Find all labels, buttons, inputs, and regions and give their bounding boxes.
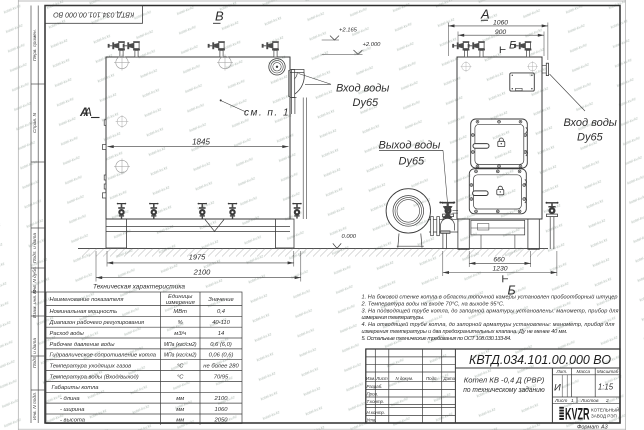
svg-text:Гидравлическое сопротивление к: Гидравлическое сопротивление котла [50, 353, 157, 359]
svg-text:по техническому заданию: по техническому заданию [463, 386, 545, 394]
svg-text:+2.165: +2.165 [339, 28, 358, 34]
svg-text:Вход воды: Вход воды [336, 83, 389, 95]
svg-text:Н.контр.: Н.контр. [367, 410, 386, 415]
svg-text:Б: Б [509, 40, 516, 52]
svg-text:Расход воды: Расход воды [50, 331, 85, 337]
svg-text:1060: 1060 [493, 20, 508, 27]
svg-text:40-110: 40-110 [212, 320, 230, 326]
svg-text:см. п. 1: см. п. 1 [244, 108, 290, 119]
svg-text:Подп. и дата: Подп. и дата [32, 233, 38, 263]
svg-text:МПа (кгс/см2): МПа (кгс/см2) [164, 342, 197, 348]
svg-text:1975: 1975 [189, 253, 207, 262]
svg-text:Рабочее давление воды: Рабочее давление воды [50, 342, 116, 348]
svg-text:КВТД.034.101.00.000 ВО: КВТД.034.101.00.000 ВО [469, 352, 611, 367]
svg-text:Пров.: Пров. [367, 392, 379, 397]
svg-text:Инв. N дубл.: Инв. N дубл. [32, 266, 38, 294]
svg-text:мм: мм [176, 418, 184, 424]
svg-text:0,4: 0,4 [217, 309, 225, 315]
svg-text:Взам. инв. N: Взам. инв. N [32, 290, 38, 318]
svg-text:Формат: Формат [577, 425, 599, 430]
svg-text:Температура уходящих газов: Температура уходящих газов [50, 364, 132, 370]
svg-text:°С: °С [177, 364, 184, 370]
svg-text:Лист: Лист [375, 376, 388, 381]
svg-text:КВТД.034.101.00.000 ВО: КВТД.034.101.00.000 ВО [53, 11, 135, 18]
svg-text:2100: 2100 [193, 267, 212, 276]
svg-text:Выход воды: Выход воды [379, 140, 441, 152]
svg-text:Подп. и дата: Подп. и дата [32, 338, 38, 368]
svg-text:Масштаб: Масштаб [597, 369, 619, 374]
svg-text:Т.контр.: Т.контр. [367, 399, 385, 404]
svg-text:°С: °С [177, 374, 184, 380]
svg-text:1:15: 1:15 [598, 383, 614, 392]
svg-text:И: И [554, 383, 561, 394]
svg-text:Dy65: Dy65 [577, 132, 604, 144]
svg-text:Лист: Лист [554, 398, 567, 404]
svg-text:КОТЕЛЬНЫЙ: КОТЕЛЬНЫЙ [591, 405, 619, 412]
svg-text:А3: А3 [600, 425, 609, 430]
svg-text:0.000: 0.000 [342, 234, 357, 240]
svg-text:Техническая характеристика: Техническая характеристика [93, 284, 185, 291]
svg-text:измерения: измерения [166, 300, 195, 306]
svg-text:Наименование показателя: Наименование показателя [50, 297, 124, 303]
svg-text:1845: 1845 [192, 138, 210, 147]
svg-text:- ширина: - ширина [60, 407, 85, 413]
svg-text:Листов: Листов [580, 398, 599, 404]
svg-text:Лит.: Лит. [556, 369, 568, 374]
svg-text:Инв. N подл.: Инв. N подл. [32, 392, 38, 420]
svg-text:м3/ч: м3/ч [174, 331, 186, 337]
svg-text:Перв. примен.: Перв. примен. [32, 29, 38, 61]
svg-text:Подп.: Подп. [426, 376, 438, 381]
svg-text:Единицы: Единицы [168, 294, 193, 300]
svg-text:2: 2 [605, 398, 609, 404]
svg-text:Разраб.: Разраб. [367, 384, 383, 389]
svg-text:Dy65: Dy65 [399, 156, 426, 168]
svg-text:мм: мм [176, 396, 184, 402]
svg-text:- высота: - высота [60, 418, 86, 424]
svg-text:Габариты котла: Габариты котла [52, 385, 100, 391]
svg-text:Дата: Дата [443, 376, 456, 381]
svg-text:Утв.: Утв. [367, 417, 377, 422]
svg-text:Масса: Масса [577, 369, 591, 374]
svg-text:14: 14 [218, 331, 224, 337]
svg-text:- длина: - длина [60, 396, 80, 402]
svg-text:900: 900 [495, 29, 507, 36]
svg-text:3. На подводящей трубе котла,: 3. На подводящей трубе котла, до запорно… [362, 307, 619, 314]
svg-text:1: 1 [571, 398, 574, 404]
svg-text:Вход воды: Вход воды [564, 117, 617, 129]
svg-text:660: 660 [493, 256, 505, 263]
svg-text:В: В [215, 9, 224, 24]
svg-text:Температура воды (Вход/выход): Температура воды (Вход/выход) [50, 374, 139, 380]
svg-text:Значение: Значение [208, 297, 234, 303]
svg-text:Диапазон рабочего регулировани: Диапазон рабочего регулирования [49, 320, 145, 326]
svg-text:1060: 1060 [215, 407, 229, 413]
svg-text:2050: 2050 [214, 418, 229, 424]
svg-text:не более 280: не более 280 [203, 364, 239, 370]
svg-text:%: % [178, 320, 183, 326]
svg-text:70/95: 70/95 [214, 374, 229, 380]
svg-text:4. На отводящей трубе котла,: 4. На отводящей трубе котла, до запорной… [362, 321, 615, 328]
svg-text:измерения температуры.: измерения температуры. [362, 315, 425, 321]
svg-text:Номинальная мощность: Номинальная мощность [50, 309, 118, 315]
svg-text:Dy65: Dy65 [353, 97, 380, 109]
svg-text:Котел КВ -0,4 Д (РВР): Котел КВ -0,4 Д (РВР) [464, 377, 545, 384]
svg-text:Справ. N: Справ. N [32, 112, 38, 133]
svg-text:А: А [83, 105, 92, 119]
svg-text:2100: 2100 [214, 396, 229, 402]
svg-text:мм: мм [176, 407, 184, 413]
svg-text:KVZR: KVZR [565, 406, 590, 424]
svg-text:5. Остальные технические треб: 5. Остальные технические требования по О… [362, 336, 512, 342]
svg-text:0,6 (6,0): 0,6 (6,0) [210, 342, 232, 348]
svg-text:МВт: МВт [173, 309, 187, 315]
svg-text:А: А [480, 6, 490, 21]
svg-text:1. На боковой стенке котла в: 1. На боковой стенке котла в области топ… [362, 293, 618, 300]
svg-text:0,06 (0,6): 0,06 (0,6) [209, 353, 234, 359]
svg-text:МПа (кгс/см2): МПа (кгс/см2) [164, 353, 197, 359]
svg-text:измерения температуры и два пр: измерения температуры и два предохраните… [362, 329, 568, 335]
svg-text:2. Температура воды на входе: 2. Температура воды на входе 70°С, на вы… [361, 301, 505, 307]
svg-text:ЗАВОД РЭП: ЗАВОД РЭП [591, 414, 617, 419]
svg-text:1230: 1230 [492, 265, 507, 272]
svg-text:+2.000: +2.000 [363, 42, 382, 48]
svg-text:N докум.: N докум. [396, 376, 414, 381]
svg-text:Изм.: Изм. [366, 376, 375, 381]
